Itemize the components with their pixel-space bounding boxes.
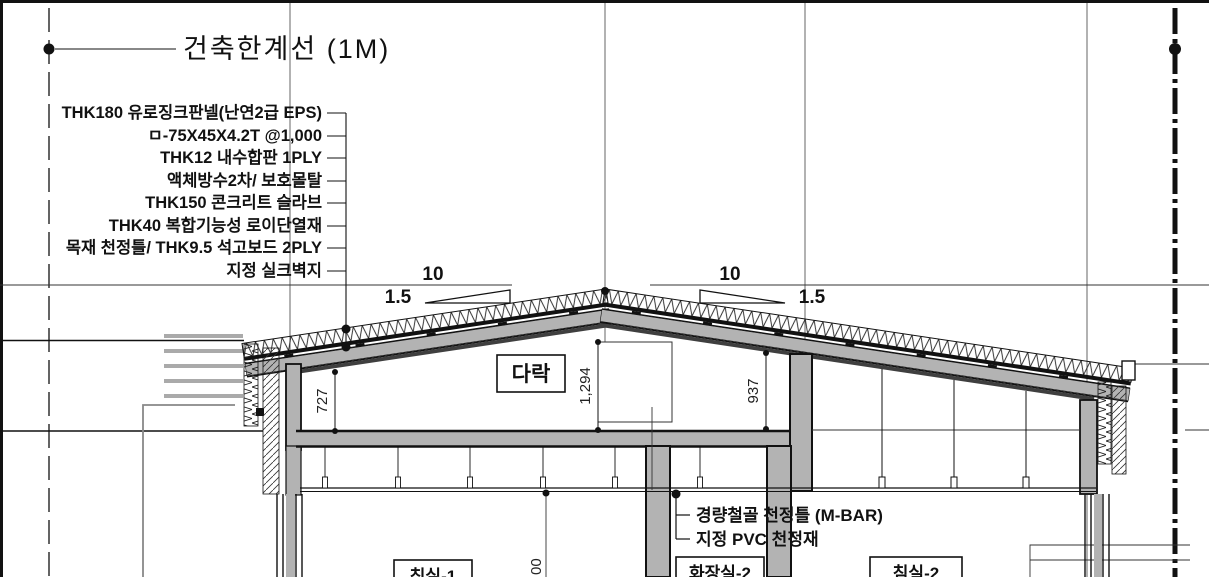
material-4: 액체방수2차/ 보호몰탈: [167, 170, 322, 190]
building-limit-line-left: [44, 8, 55, 577]
left-window-section: [277, 494, 302, 577]
ceiling-callout-1: 경량철골 천정틀 (M-BAR): [696, 506, 883, 525]
dim-727-text: 727: [314, 388, 331, 413]
dimension-floor-height: 00: [528, 490, 550, 577]
dimension-1294: 1,294: [577, 339, 601, 433]
interior-wall-1: [646, 446, 670, 577]
room1-label: 침실-1: [410, 566, 456, 577]
material-2: ㅁ-75X45X4.2T @1,000: [148, 127, 322, 145]
attic-opening: [598, 342, 672, 422]
material-3: THK12 내수합판 1PLY: [160, 147, 322, 167]
louver-bars: [164, 334, 243, 398]
room3-label: 침실-2: [893, 563, 939, 577]
slope-run-left: 10: [422, 264, 443, 285]
dim-937-text: 937: [745, 378, 762, 403]
dim-1294-text: 1,294: [577, 367, 594, 405]
left-exterior-wall: [244, 344, 302, 577]
ceiling-callout-2: 지정 PVC 천정재: [696, 530, 819, 549]
attic-right-wall: [790, 354, 812, 491]
dim-partial-text: 00: [528, 558, 545, 575]
slope-indicator-right: 10 1.5: [700, 264, 826, 308]
building-limit-line-right: [1169, 8, 1181, 577]
dimension-727: 727: [314, 369, 338, 434]
slope-run-right: 10: [719, 264, 740, 285]
room2-label: 화장실-2: [689, 564, 751, 577]
attic-label: 다락: [497, 355, 565, 392]
drawing-title: 건축한계선 (1M): [183, 34, 390, 64]
attic-floor-slab: [296, 431, 812, 447]
right-window-section: [1085, 494, 1109, 577]
roof-right-slope: [599, 289, 1133, 406]
section-canvas: 건축한계선 (1M): [0, 0, 1209, 577]
material-8: 지정 실크벽지: [226, 261, 322, 280]
material-5: THK150 콘크리트 슬라브: [145, 193, 322, 212]
slope-indicator-left: 10 1.5: [385, 264, 510, 308]
eave-fascia-right: [1122, 361, 1135, 380]
ridge-point: [601, 287, 609, 295]
material-callout-list: THK180 유로징크판넬(난연2급 EPS) ㅁ-75X45X4.2T @1,…: [62, 103, 351, 352]
slope-rise-left: 1.5: [385, 287, 412, 308]
material-7: 목재 천정틀/ THK9.5 석고보드 2PLY: [66, 238, 322, 257]
room-labels: 침실-1 화장실-2 침실-2: [394, 557, 962, 577]
dimension-937: 937: [745, 350, 769, 432]
material-1: THK180 유로징크판넬(난연2급 EPS): [62, 103, 322, 122]
architectural-section-drawing: 건축한계선 (1M): [0, 0, 1209, 577]
title-leader: 건축한계선 (1M): [55, 34, 390, 64]
material-6: THK40 복합기능성 로이단열재: [109, 215, 322, 235]
material-leader-lines: [327, 113, 346, 347]
slope-rise-right: 1.5: [799, 287, 826, 308]
attic-label-text: 다락: [512, 363, 551, 386]
